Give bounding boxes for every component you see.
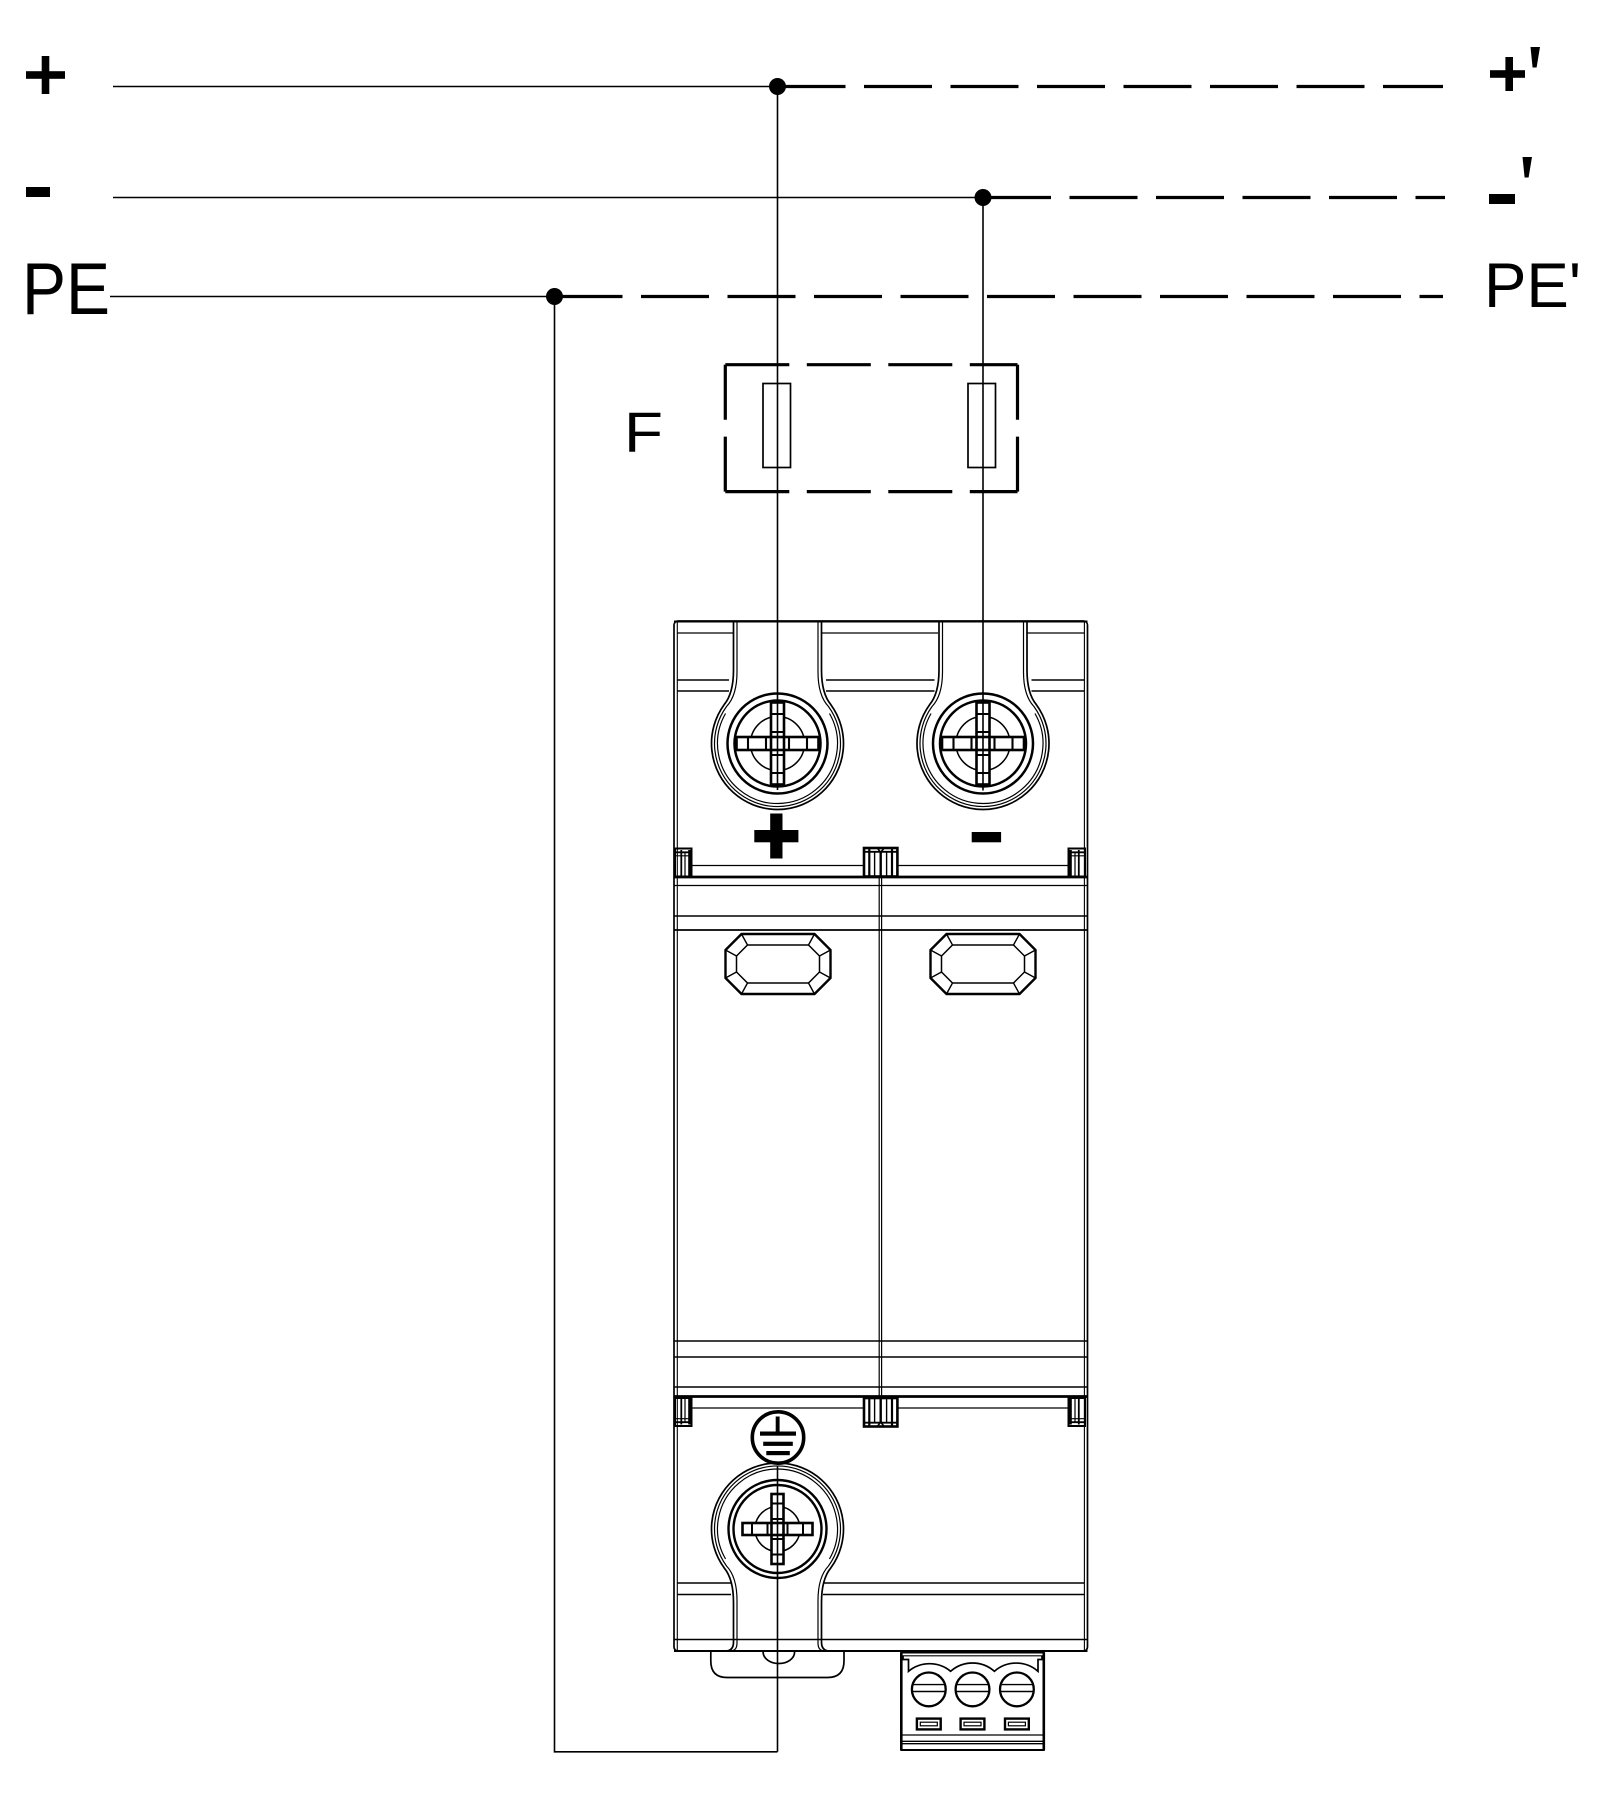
svg-text:PE: PE [22, 249, 110, 330]
svg-text:F: F [624, 401, 663, 465]
svg-text:PE': PE' [1484, 251, 1581, 321]
